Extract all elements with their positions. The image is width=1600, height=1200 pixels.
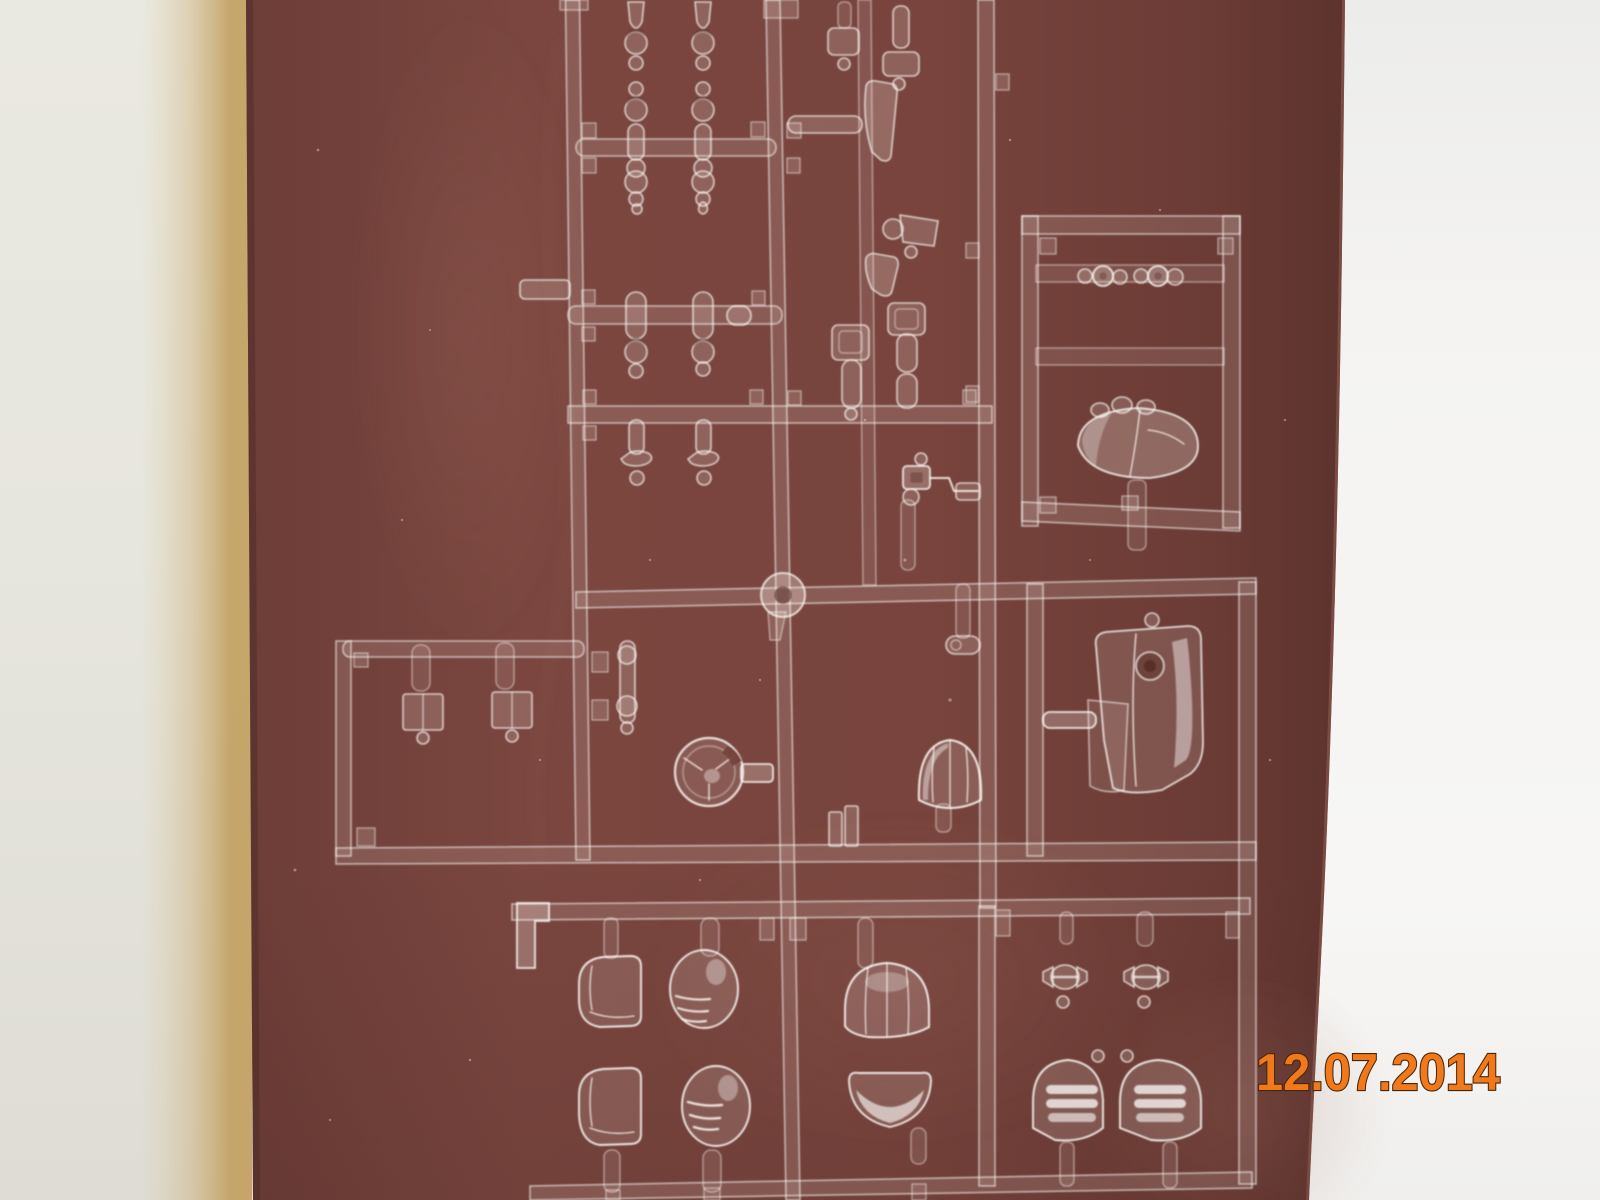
svg-text:12.07.2014: 12.07.2014 xyxy=(1256,1044,1500,1102)
